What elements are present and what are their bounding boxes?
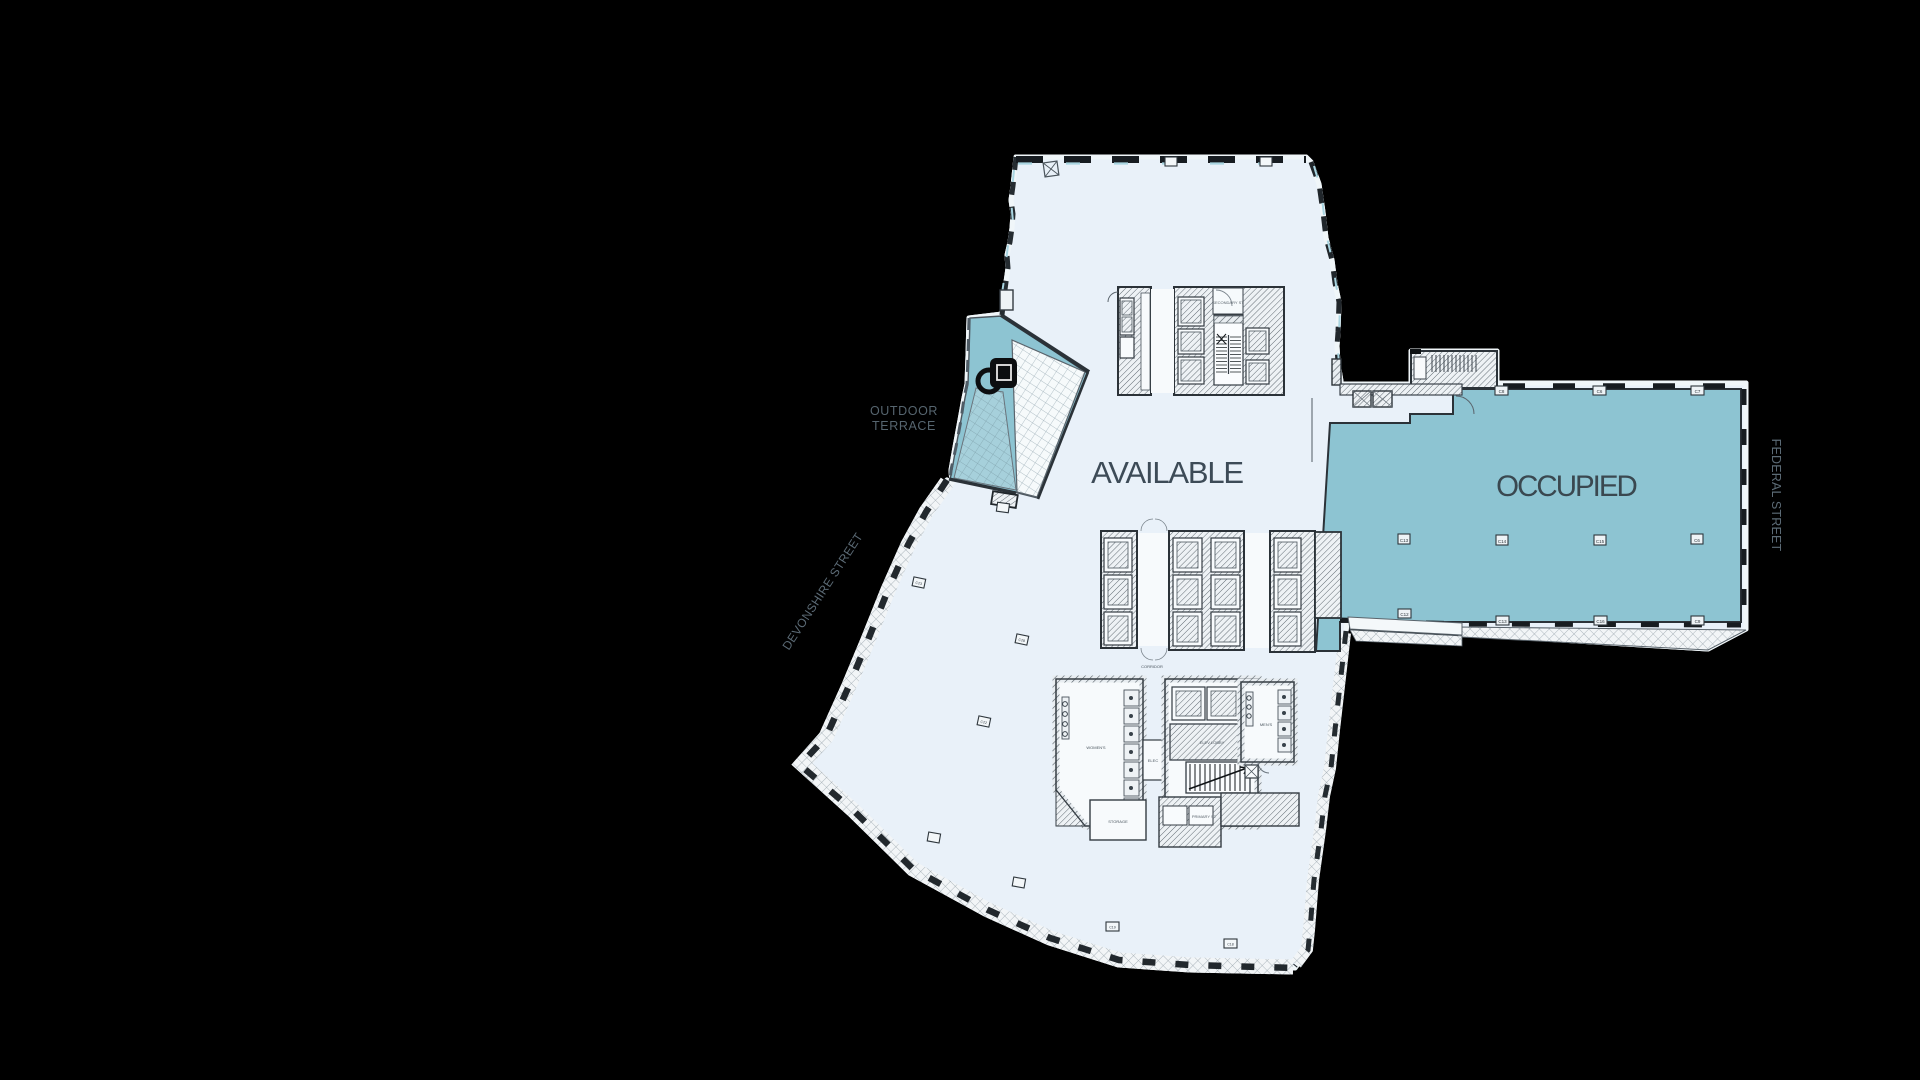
svg-text:C7: C7 [1695, 389, 1701, 394]
svg-text:C12: C12 [1400, 612, 1409, 617]
svg-text:SECONDARY ST: SECONDARY ST [1212, 300, 1244, 305]
svg-text:C6: C6 [1597, 389, 1603, 394]
svg-text:C13: C13 [1400, 538, 1409, 543]
svg-text:TERRACE: TERRACE [872, 419, 936, 433]
svg-text:C8: C8 [1499, 389, 1505, 394]
svg-text:ELEV LOBBY: ELEV LOBBY [1200, 740, 1225, 745]
svg-text:C15: C15 [1596, 539, 1605, 544]
svg-text:WOMEN'S: WOMEN'S [1086, 745, 1106, 750]
svg-text:AVAILABLE: AVAILABLE [1091, 455, 1243, 490]
svg-text:MEN'S: MEN'S [1260, 722, 1273, 727]
svg-text:C13: C13 [1498, 619, 1507, 624]
svg-text:C6: C6 [1694, 538, 1700, 543]
svg-text:C14: C14 [1498, 539, 1507, 544]
svg-text:STORAGE: STORAGE [1108, 819, 1128, 824]
svg-text:C9: C9 [1695, 619, 1701, 624]
svg-text:C18: C18 [1227, 943, 1234, 947]
svg-text:ELEC: ELEC [1148, 758, 1159, 763]
svg-text:FEDERAL STREET: FEDERAL STREET [1769, 439, 1783, 552]
svg-text:C16: C16 [1596, 619, 1605, 624]
svg-text:OCCUPIED: OCCUPIED [1496, 470, 1636, 503]
svg-text:OUTDOOR: OUTDOOR [870, 404, 938, 418]
svg-text:PRIMARY ST: PRIMARY ST [1192, 814, 1217, 819]
svg-text:C19: C19 [1109, 926, 1116, 930]
svg-text:CORRIDOR: CORRIDOR [1141, 664, 1163, 669]
